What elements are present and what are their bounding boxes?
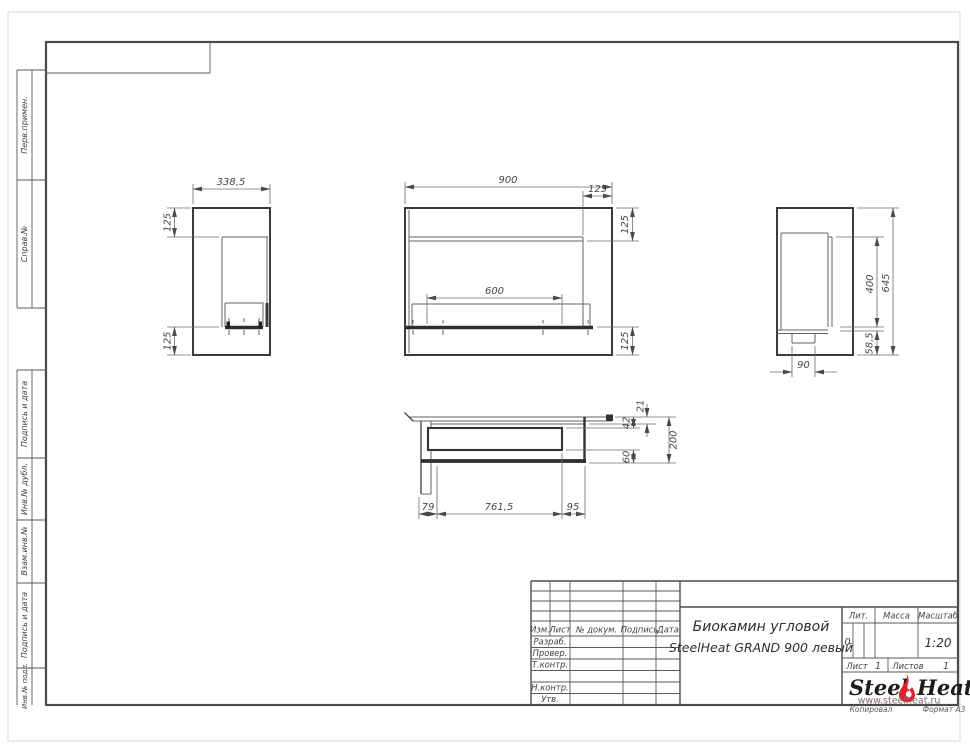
dim-side-top: 125 — [163, 213, 174, 232]
dim-side-width: 338,5 — [217, 177, 246, 188]
dim-front-width: 900 — [498, 175, 517, 186]
sheet-label: Лист — [845, 661, 868, 671]
col-date: Дата — [656, 625, 679, 635]
scale-label: Масштаб — [918, 611, 958, 621]
main-frame — [46, 42, 958, 705]
dim-plan-lip: 21 — [636, 400, 647, 413]
sheets-value: 1 — [943, 661, 949, 672]
view-plan — [405, 413, 614, 495]
dim-front-burner: 600 — [485, 286, 504, 297]
glass-edge — [266, 303, 269, 327]
burner-opening — [428, 428, 562, 450]
dim-plan-back: 60 — [622, 451, 633, 464]
title-block: Изм. Лист № докум. Подпись Дата Разраб. … — [530, 581, 970, 707]
row-razrab: Разраб. — [534, 637, 567, 647]
margin-labels: Перв.примен. Справ.№ Подпись и дата Инв.… — [20, 96, 29, 709]
dim-plan-length: 761,5 — [485, 502, 514, 513]
view-side-section — [193, 208, 270, 355]
top-left-box — [46, 42, 210, 73]
dim-plan-front: 42 — [622, 417, 633, 430]
mass-label: Масса — [883, 611, 910, 621]
col-doc: № докум. — [575, 625, 617, 635]
row-utv: Утв. — [541, 694, 559, 704]
dim-side-bottom: 125 — [163, 331, 174, 350]
margin-label-inv-podl: Инв.№ подл. — [21, 663, 29, 709]
margin-label-sprav: Справ.№ — [20, 226, 29, 262]
col-izm: Изм. — [530, 625, 550, 635]
drawing-sheet: Перв.примен. Справ.№ Подпись и дата Инв.… — [0, 0, 970, 749]
doc-title-line1: Биокамин угловой — [693, 619, 830, 635]
dim-front-bottom: 125 — [620, 331, 631, 350]
lit-value: 0 — [844, 637, 850, 648]
row-prover: Провер. — [533, 648, 568, 658]
dim-plan-left: 79 — [422, 502, 435, 513]
dim-profile-height: 645 — [881, 273, 892, 292]
col-list: Лист — [548, 625, 571, 635]
view-profile — [777, 208, 853, 355]
footer-copied: Копировал — [850, 705, 893, 714]
lit-label: Лит. — [848, 611, 868, 621]
row-tkontr: Т.контр. — [532, 660, 568, 670]
margin-label-inv-dubl: Инв.№ дубл. — [20, 463, 29, 515]
lip-end-cap — [606, 415, 613, 422]
dim-front-right: 125 — [588, 184, 607, 195]
dim-profile-opening: 400 — [865, 274, 876, 293]
scale-value: 1:20 — [925, 636, 952, 650]
margin-label-podpis-data-1: Подпись и дата — [20, 381, 29, 447]
dim-profile-bottom: 58,5 — [865, 332, 876, 354]
drawing-canvas: Перв.примен. Справ.№ Подпись и дата Инв.… — [0, 0, 970, 749]
col-sign: Подпись — [621, 625, 659, 635]
margin-label-vzam-inv: Взам.инв.№ — [20, 526, 29, 575]
margin-label-podpis-data-2: Подпись и дата — [20, 592, 29, 658]
dim-profile-foot: 90 — [797, 360, 810, 371]
doc-title-line2: SteelHeat GRAND 900 левый — [669, 640, 853, 655]
margin-label-perv-primen: Перв.примен. — [20, 96, 29, 154]
footer-format: Формат А3 — [923, 705, 966, 714]
sheet-value: 1 — [875, 661, 881, 672]
view-front — [405, 208, 612, 355]
row-nkontr: Н.контр. — [531, 683, 568, 693]
dim-front-top: 125 — [620, 215, 631, 234]
steelheat-logo: Steel Heat www.steelheat.ru — [849, 674, 970, 707]
dim-plan-right: 95 — [567, 502, 580, 513]
dim-plan-depth: 200 — [669, 430, 680, 449]
sheets-label: Листов — [891, 661, 923, 671]
